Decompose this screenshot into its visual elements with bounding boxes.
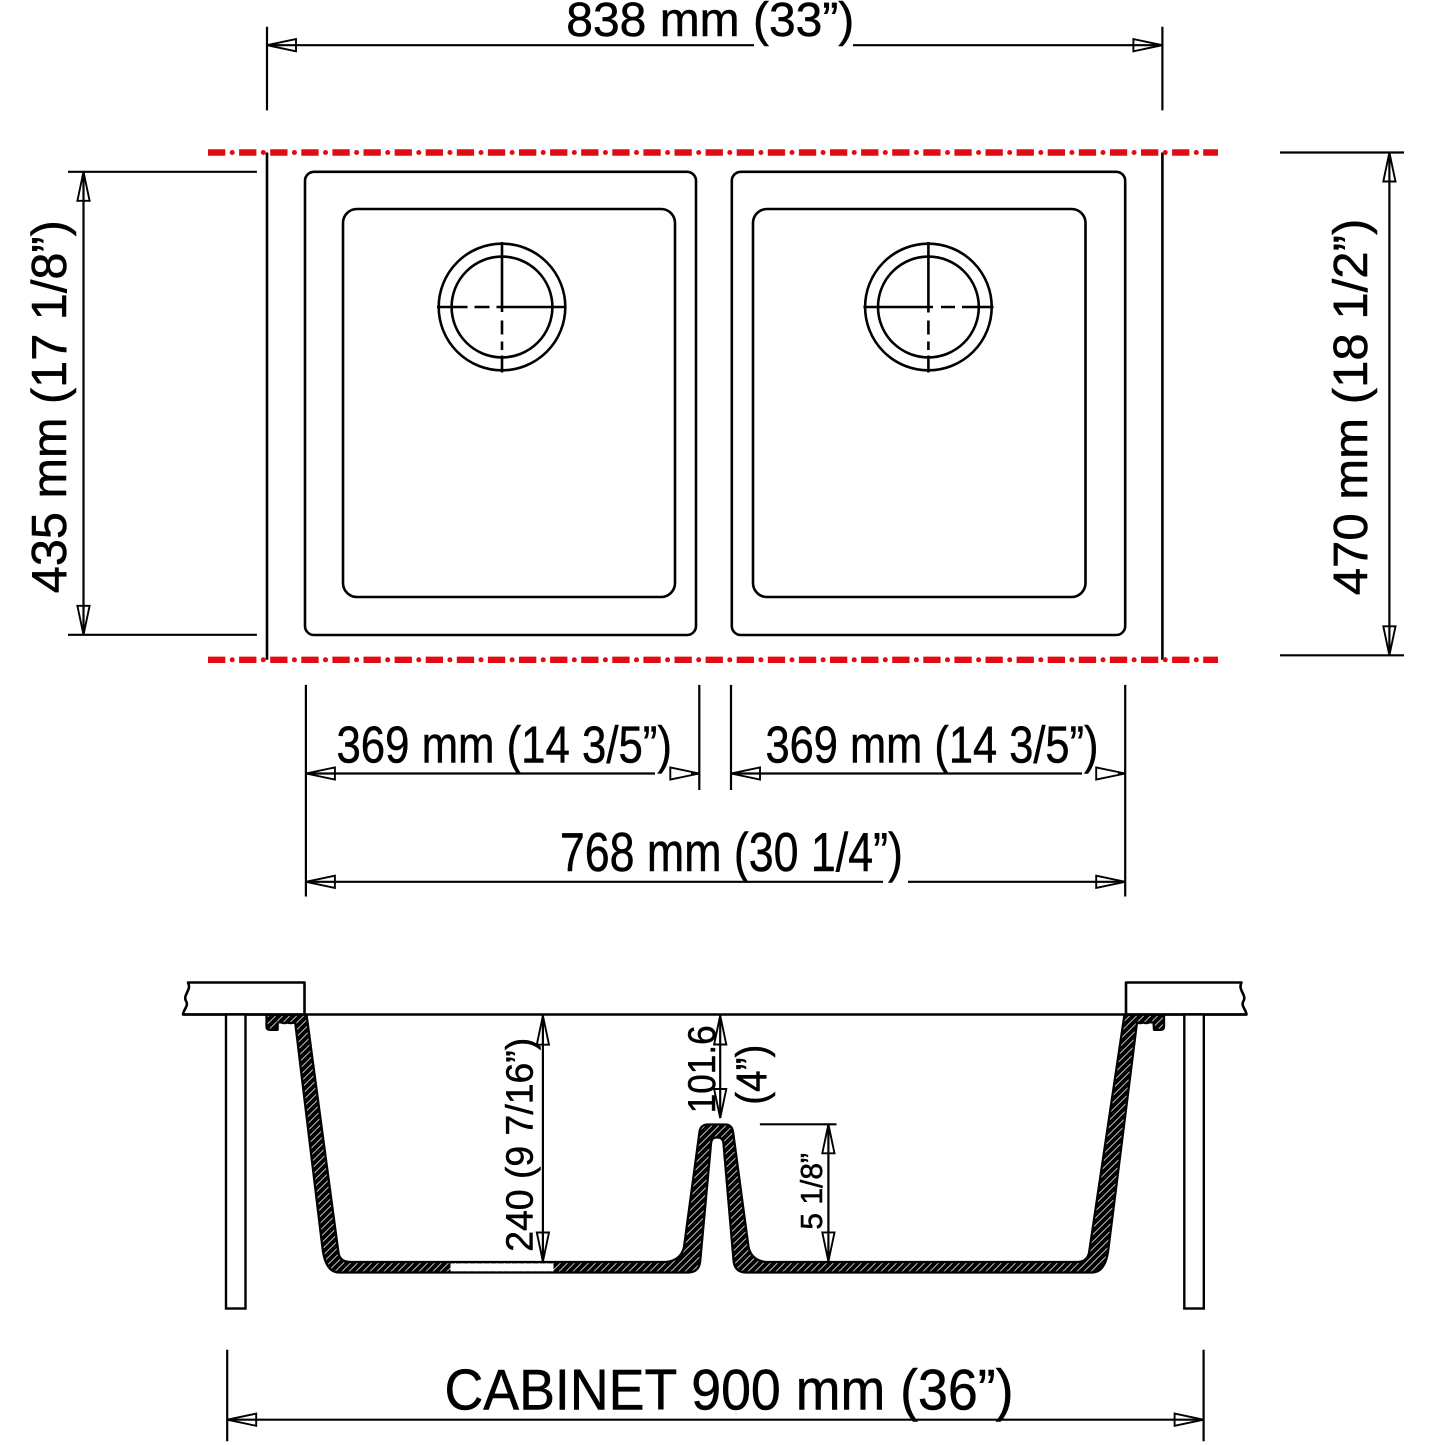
- svg-text:5 1/8”: 5 1/8”: [795, 1153, 829, 1230]
- svg-text:101.6: 101.6: [681, 1025, 724, 1113]
- svg-text:838 mm (33”): 838 mm (33”): [566, 0, 854, 47]
- svg-text:CABINET 900 mm (36”): CABINET 900 mm (36”): [445, 1358, 1014, 1422]
- svg-text:(4”): (4”): [729, 1045, 776, 1105]
- svg-text:768 mm (30 1/4”): 768 mm (30 1/4”): [560, 822, 903, 883]
- svg-text:369 mm (14 3/5”): 369 mm (14 3/5”): [766, 717, 1099, 775]
- svg-text:470 mm (18 1/2”): 470 mm (18 1/2”): [1324, 219, 1378, 596]
- svg-text:240 (9 7/16”): 240 (9 7/16”): [500, 1038, 542, 1252]
- svg-text:435 mm (17 1/8”): 435 mm (17 1/8”): [23, 220, 77, 593]
- svg-text:369 mm (14 3/5”): 369 mm (14 3/5”): [336, 717, 672, 775]
